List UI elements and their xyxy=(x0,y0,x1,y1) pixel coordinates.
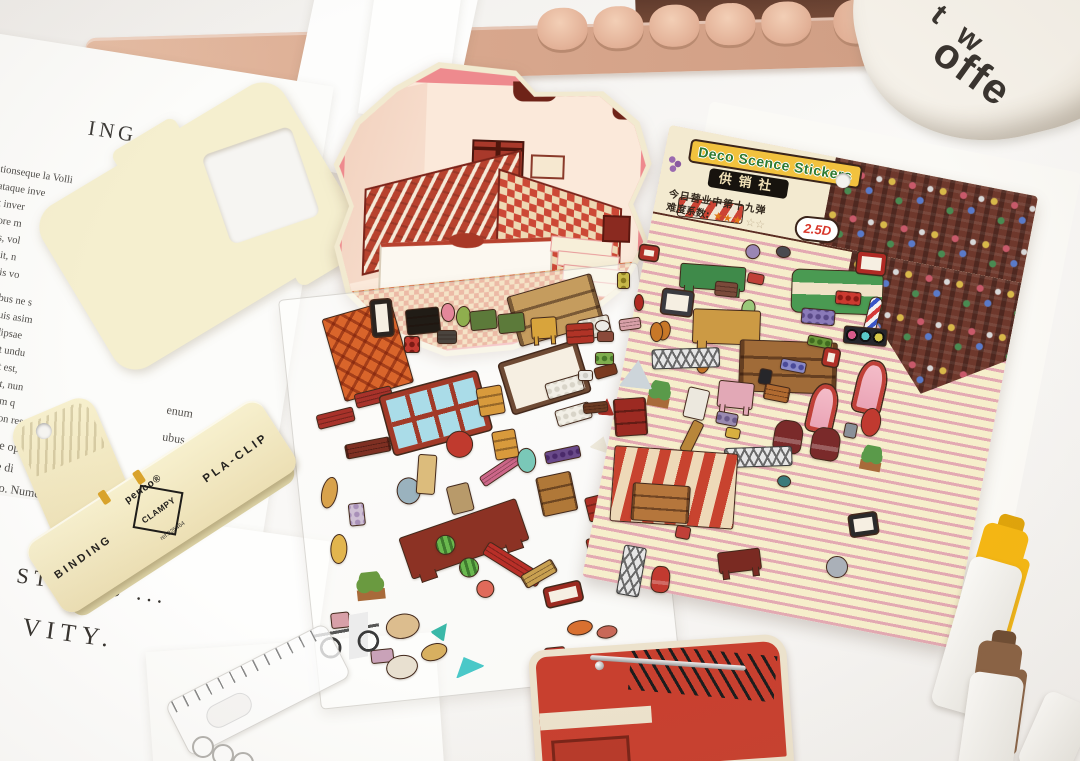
lantern-pair-sticker xyxy=(617,272,630,289)
radio-screw xyxy=(594,661,604,671)
red-flowers-sticker xyxy=(404,336,420,353)
candy-bar-sticker xyxy=(582,401,608,415)
standing-fan-sticker xyxy=(826,556,848,578)
red-radio-sticker xyxy=(528,633,794,761)
clock-stand-sticker xyxy=(370,299,393,337)
radio-body xyxy=(535,641,786,761)
plush-pink-sticker xyxy=(440,303,455,323)
mini-radio-sticker xyxy=(437,330,457,344)
desk-scene: t w offe ING. tionseque la Volliataque i… xyxy=(0,0,1080,761)
desk-sticker-layer xyxy=(0,0,1080,761)
red-folding-chair-sticker xyxy=(650,565,672,594)
red-mini-frame-sticker xyxy=(639,245,659,261)
hanging-scale-sticker xyxy=(619,358,656,389)
green-satchel-a-sticker xyxy=(469,309,498,332)
dark-red-bench-sticker xyxy=(717,547,762,574)
radio-cream-band xyxy=(539,705,652,730)
radio-vents xyxy=(628,644,778,703)
plush-pair-green-sticker xyxy=(595,352,614,365)
marker-body xyxy=(952,671,1025,761)
green-satchel-b-sticker xyxy=(497,312,526,335)
red-bookcase-sticker xyxy=(613,397,649,437)
amber-bottle-sticker xyxy=(650,322,663,342)
spiral-ring xyxy=(212,744,234,761)
radio-screen xyxy=(551,735,633,761)
black-crate-sticker xyxy=(405,306,442,335)
black-frame-sticker xyxy=(849,512,879,537)
white-cups-sticker xyxy=(578,370,593,381)
wood-ladder-sticker xyxy=(616,544,647,597)
pink-eraser-box-sticker xyxy=(618,317,641,332)
crate-of-cans-sticker xyxy=(565,322,594,345)
red-bottle-sticker xyxy=(634,294,644,311)
mini-truck-sticker xyxy=(597,331,614,342)
yellow-stool-sticker xyxy=(530,316,557,340)
spiral-ring xyxy=(192,736,214,758)
